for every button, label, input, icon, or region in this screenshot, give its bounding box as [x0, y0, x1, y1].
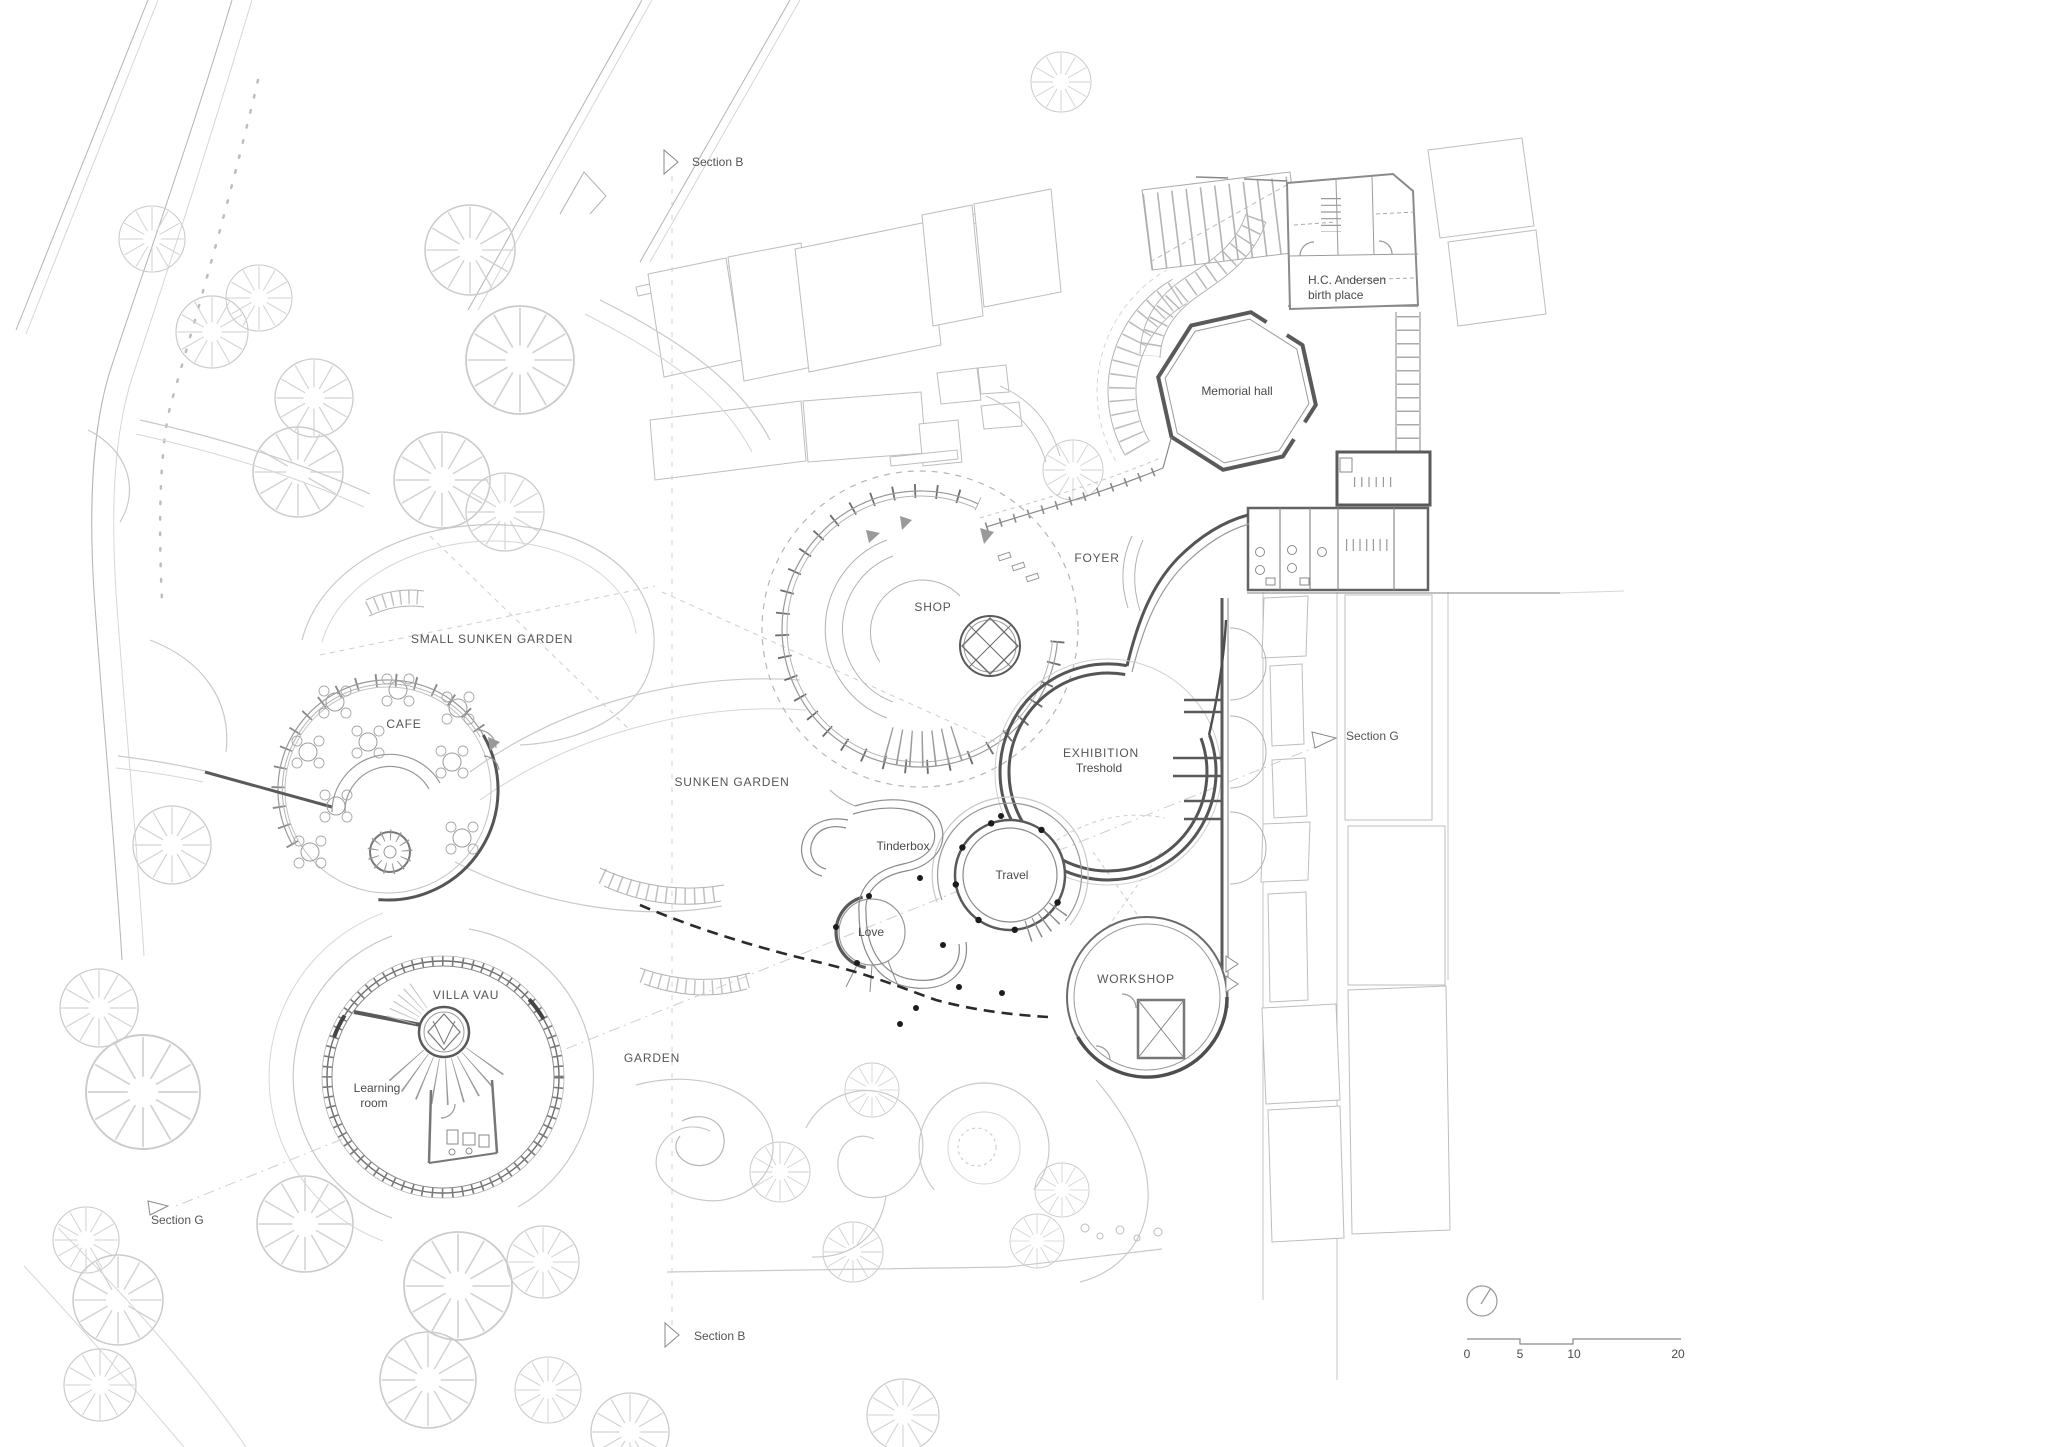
label-section-b-top: Section B [692, 155, 743, 169]
label-travel: Travel [996, 868, 1029, 882]
villa-vau [269, 913, 593, 1241]
workshop-pavilion [1067, 917, 1238, 1077]
cafe-rotunda [205, 674, 500, 900]
shop-rotunda [762, 471, 1078, 787]
label-exhibition-treshold: Treshold [1076, 761, 1122, 775]
scale-tick-5: 5 [1517, 1347, 1524, 1361]
existing-facade-door-arcs [1230, 628, 1266, 884]
skylight-arrow-icons [866, 516, 994, 544]
site-plan-drawing: Section B Section B Section G Section G … [0, 0, 2048, 1447]
pergola-trellis [1142, 172, 1300, 270]
label-small-sunken-garden: SMALL SUNKEN GARDEN [411, 632, 573, 646]
existing-buildings-east [1247, 591, 1624, 1380]
north-circle-icon [1467, 1286, 1497, 1316]
section-g-right-marker-icon [1312, 732, 1336, 748]
label-birthplace-2: birth place [1308, 288, 1364, 302]
cafe-spiral-stair [370, 832, 410, 872]
label-cafe: CAFE [386, 717, 421, 731]
label-memorial-hall: Memorial hall [1201, 384, 1272, 398]
label-shop: SHOP [914, 600, 951, 614]
label-exhibition: EXHIBITION [1063, 746, 1139, 760]
scale-tick-20: 20 [1671, 1347, 1685, 1361]
label-section-g-left: Section G [151, 1213, 204, 1227]
label-foyer: FOYER [1074, 551, 1119, 565]
scale-tick-0: 0 [1464, 1347, 1471, 1361]
scale-bar: 0 5 10 20 [1464, 1339, 1685, 1361]
label-tinderbox: Tinderbox [877, 839, 930, 853]
scale-tick-10: 10 [1567, 1347, 1581, 1361]
label-love: Love [858, 925, 884, 939]
label-section-g-right: Section G [1346, 729, 1399, 743]
north-indicator [1467, 1286, 1497, 1316]
label-sunken-garden: SUNKEN GARDEN [674, 775, 789, 789]
label-workshop: WORKSHOP [1097, 972, 1175, 986]
tinderbox-swirls [802, 790, 967, 988]
label-garden: GARDEN [624, 1051, 680, 1065]
label-learning-2: room [360, 1096, 387, 1110]
section-b-top-marker-icon [664, 150, 678, 174]
section-b-bottom-marker-icon [665, 1323, 679, 1347]
label-villa-vau: VILLA VAU [433, 988, 499, 1002]
label-learning-1: Learning [354, 1081, 401, 1095]
site-plan-sheet: Section B Section B Section G Section G … [0, 0, 2048, 1447]
label-birthplace-1: H.C. Andersen [1308, 273, 1386, 287]
label-section-b-bottom: Section B [694, 1329, 745, 1343]
